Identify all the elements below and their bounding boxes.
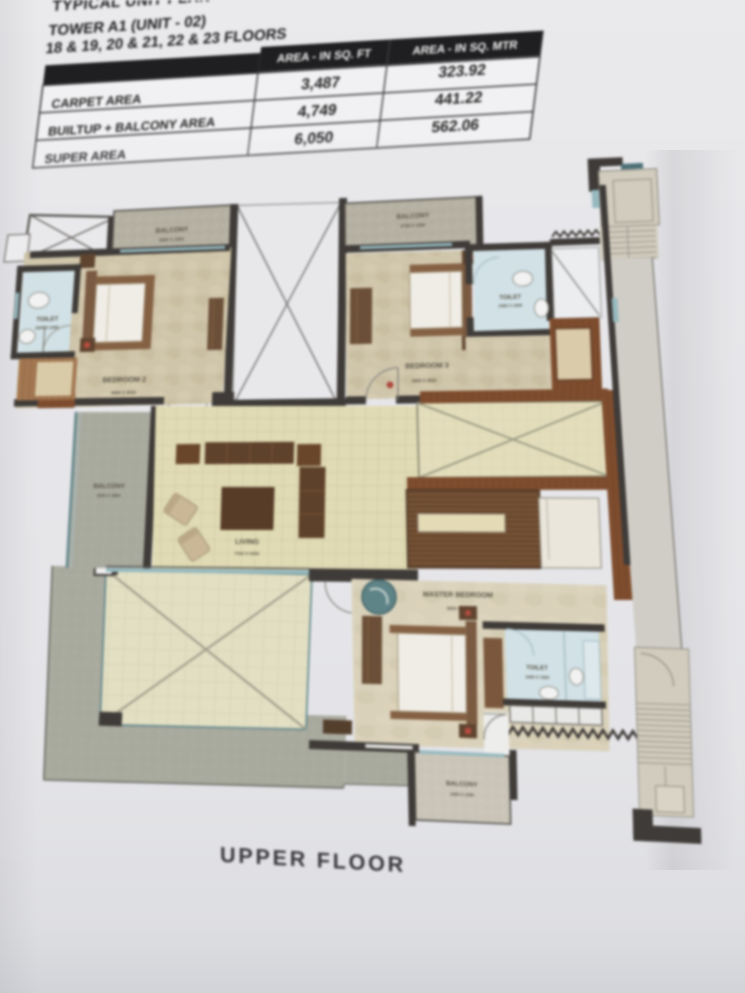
svg-text:562.06: 562.06: [431, 117, 481, 137]
svg-text:4,749: 4,749: [297, 102, 338, 121]
svg-text:3,487: 3,487: [300, 74, 341, 93]
svg-text:323.92: 323.92: [437, 62, 487, 82]
svg-text:441.22: 441.22: [434, 89, 484, 109]
svg-text:TYPICAL UNIT PLAN: TYPICAL UNIT PLAN: [52, 0, 212, 15]
